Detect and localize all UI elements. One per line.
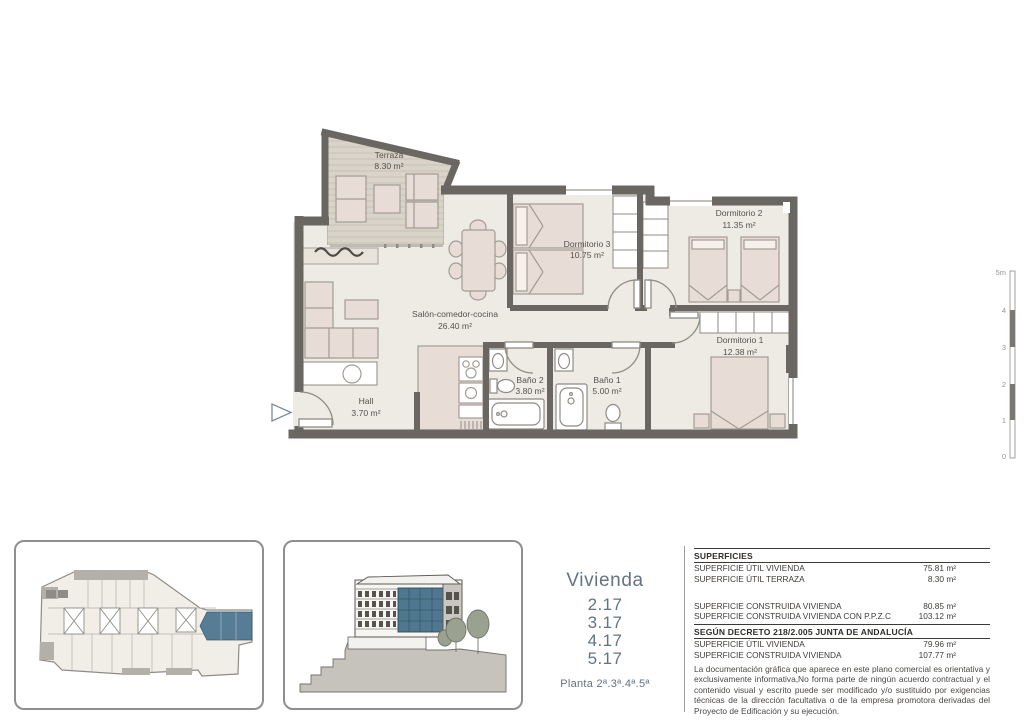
unit-number: 4.17 — [543, 632, 667, 650]
scale-label: 5m — [996, 268, 1006, 277]
room-area-bano2: 3.80 m² — [515, 386, 544, 396]
building-elevation — [285, 542, 521, 708]
row-value: 8.30 m² — [928, 574, 990, 585]
scale-label: 1 — [1002, 416, 1006, 425]
surfaces-title: SUPERFICIES — [694, 548, 990, 563]
nightstand — [770, 414, 785, 428]
vertical-divider — [684, 546, 685, 712]
entrance-door-leaf — [299, 419, 332, 427]
legal-disclaimer: La documentación gráfica que aparece en … — [694, 664, 990, 716]
table-row: SUPERFICIE ÚTIL VIVIENDA 79.96 m² — [694, 639, 990, 650]
floor-label: Planta 2ª.3ª.4ª.5ª — [543, 678, 667, 690]
unit-info: Vivienda 2.17 3.17 4.17 5.17 Planta 2ª.3… — [543, 570, 667, 690]
room-area-dormitorio3: 10.75 m² — [570, 250, 604, 260]
row-label: SUPERFICIE CONSTRUIDA VIVIENDA — [694, 650, 842, 661]
room-label-dormitorio3: Dormitorio 3 — [564, 239, 611, 249]
room-label-dormitorio2: Dormitorio 2 — [716, 208, 763, 218]
table-row: SUPERFICIE CONSTRUIDA VIVIENDA CON P.P.Z… — [694, 611, 990, 622]
table-row: SUPERFICIE CONSTRUIDA VIVIENDA 107.77 m² — [694, 650, 990, 661]
highlighted-unit — [200, 612, 252, 640]
kitchen — [418, 346, 484, 430]
room-label-dormitorio1: Dormitorio 1 — [717, 335, 764, 345]
decree-title: SEGÚN DECRETO 218/2.005 JUNTA DE ANDALUC… — [694, 624, 990, 639]
key-plan-thumbnail — [14, 540, 264, 710]
row-value: 79.96 m² — [923, 639, 990, 650]
room-area-dormitorio1: 12.38 m² — [723, 347, 757, 357]
toilet-icon — [490, 379, 497, 393]
cooktop-icon — [459, 357, 483, 381]
room-label-terraza: Terraza — [375, 150, 404, 160]
scale-label: 0 — [1002, 452, 1006, 461]
podium — [348, 637, 426, 649]
row-label: SUPERFICIE ÚTIL TERRAZA — [694, 574, 805, 585]
surfaces-table: SUPERFICIES SUPERFICIE ÚTIL VIVIENDA 75.… — [694, 548, 990, 661]
terrain — [300, 642, 506, 692]
room-area-dormitorio2: 11.35 m² — [722, 220, 755, 230]
elevation-thumbnail — [283, 540, 523, 710]
scale-label: 2 — [1002, 380, 1006, 389]
room-area-terraza: 8.30 m² — [374, 161, 403, 171]
sink-icon — [459, 383, 483, 403]
row-value: 107.77 m² — [919, 650, 990, 661]
room-label-bano1: Baño 1 — [593, 375, 620, 385]
floor-plan-area: 5m 4 3 2 1 0 Terraza 8.30 m² Dormitorio … — [0, 0, 1024, 520]
nightstand — [694, 414, 709, 428]
row-value: 75.81 m² — [923, 563, 990, 574]
row-value: 80.85 m² — [923, 601, 990, 612]
unit-title: Vivienda — [543, 570, 667, 592]
table-row: SUPERFICIE CONSTRUIDA VIVIENDA 80.85 m² — [694, 601, 990, 612]
table-row: SUPERFICIE ÚTIL TERRAZA 8.30 m² — [694, 574, 990, 585]
dining-table — [462, 230, 495, 291]
exterior-mask — [650, 183, 804, 197]
table-row: SUPERFICIE ÚTIL VIVIENDA 75.81 m² — [694, 563, 990, 574]
unit-number: 3.17 — [543, 614, 667, 632]
row-label: SUPERFICIE ÚTIL VIVIENDA — [694, 639, 805, 650]
brochure-page: { "floor_plan": { "rooms": [ {"name": "T… — [0, 0, 1024, 724]
key-plan — [16, 542, 262, 708]
tv-console — [303, 362, 377, 385]
room-area-hall: 3.70 m² — [351, 408, 380, 418]
row-value: 103.12 m² — [919, 611, 990, 622]
room-label-bano2: Baño 2 — [516, 375, 543, 385]
toilet-icon — [606, 405, 620, 422]
nightstand — [728, 290, 740, 302]
room-area-bano1: 5.00 m² — [592, 386, 621, 396]
room-label-salon: Salón-comedor-cocina — [412, 309, 498, 319]
scale-bar: 5m 4 3 2 1 0 — [996, 268, 1015, 461]
row-label: SUPERFICIE CONSTRUIDA VIVIENDA CON P.P.Z… — [694, 611, 891, 622]
coffee-table — [345, 300, 378, 319]
roof — [357, 575, 460, 584]
room-area-salon: 26.40 m² — [438, 321, 472, 331]
scale-label: 4 — [1002, 306, 1006, 315]
row-label: SUPERFICIE ÚTIL VIVIENDA — [694, 563, 805, 574]
scale-label: 3 — [1002, 343, 1006, 352]
table-gap — [694, 585, 990, 601]
entrance-arrow-icon — [272, 404, 291, 421]
unit-number: 5.17 — [543, 650, 667, 668]
unit-number: 2.17 — [543, 596, 667, 614]
row-label: SUPERFICIE CONSTRUIDA VIVIENDA — [694, 601, 842, 612]
room-label-hall: Hall — [359, 396, 374, 406]
floor-plan: 5m 4 3 2 1 0 Terraza 8.30 m² Dormitorio … — [0, 0, 1024, 520]
